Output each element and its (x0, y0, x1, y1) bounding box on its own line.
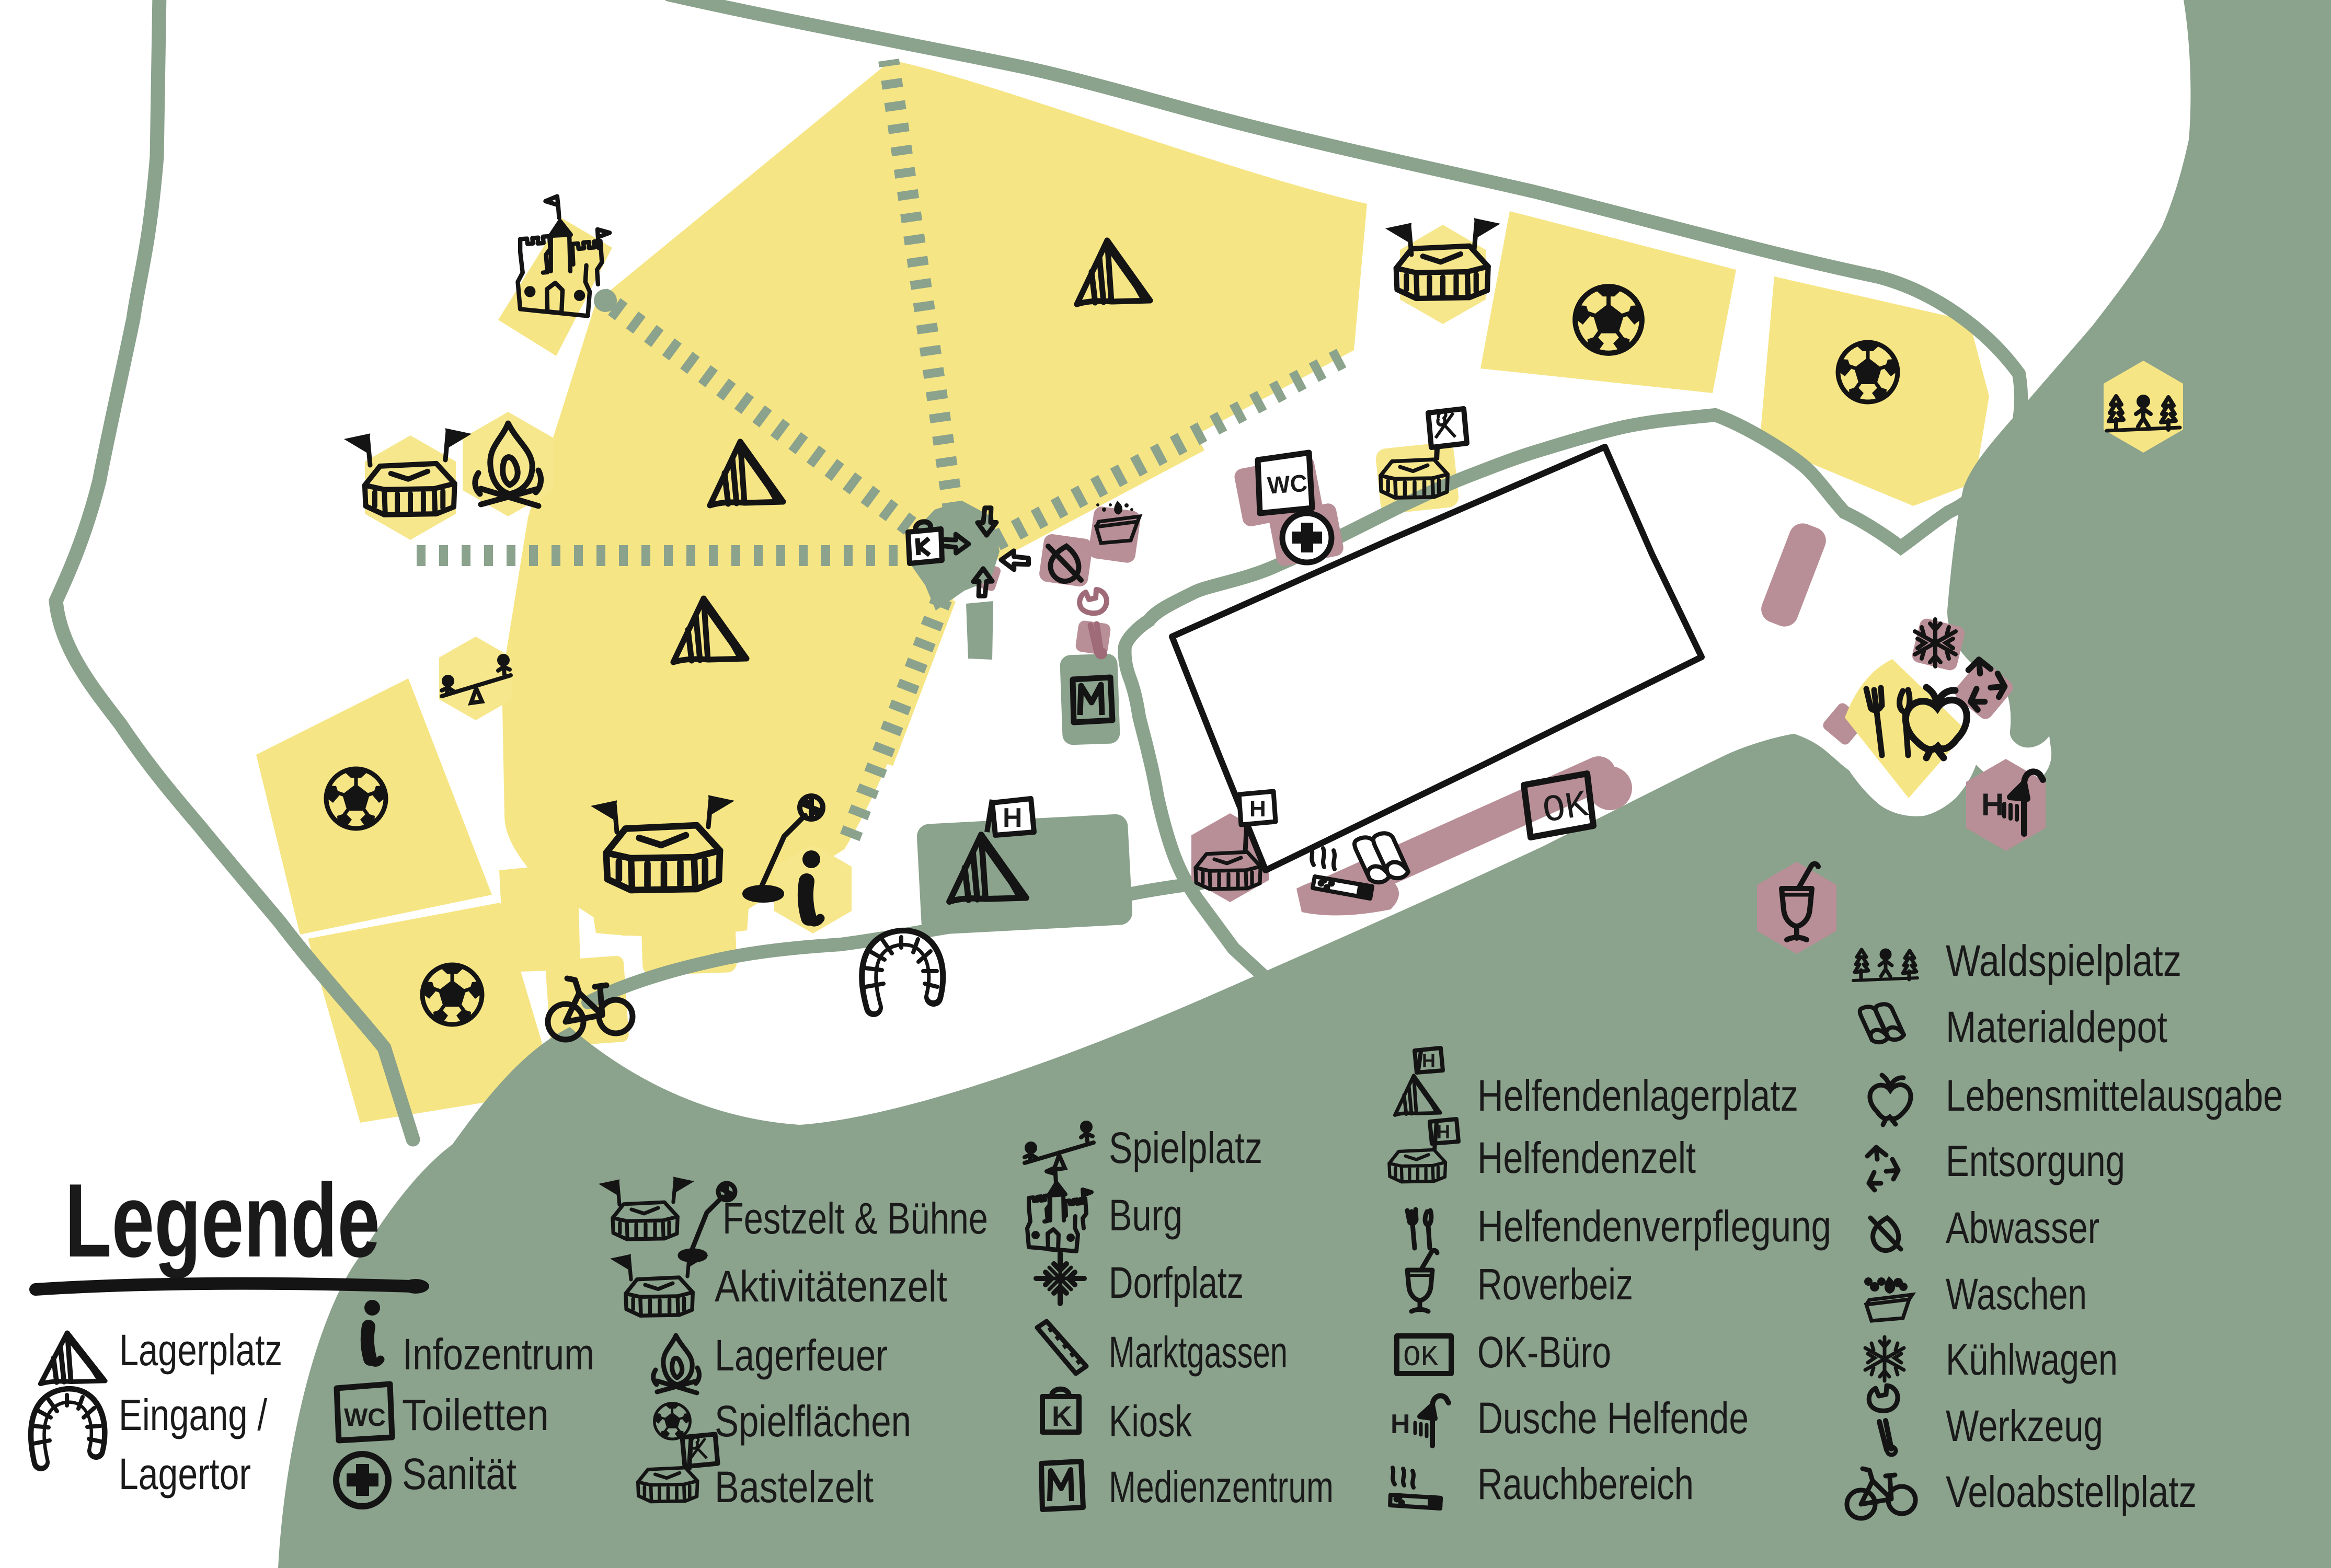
svg-text:Helfendenverpflegung: Helfendenverpflegung (1477, 1202, 1831, 1251)
svg-text:Marktgassen: Marktgassen (1109, 1328, 1288, 1377)
svg-text:Kühlwagen: Kühlwagen (1946, 1335, 2118, 1384)
svg-text:H: H (1981, 787, 2004, 822)
svg-text:Rauchbereich: Rauchbereich (1477, 1459, 1694, 1508)
svg-text:Festzelt & Bühne: Festzelt & Bühne (722, 1194, 988, 1243)
svg-text:Spielplatz: Spielplatz (1109, 1123, 1262, 1172)
svg-text:Sanität: Sanität (402, 1449, 516, 1498)
svg-text:Dorfplatz: Dorfplatz (1109, 1258, 1244, 1307)
svg-text:Waschen: Waschen (1946, 1270, 2087, 1319)
svg-text:Aktivitätenzelt: Aktivitätenzelt (715, 1262, 947, 1311)
svg-text:H: H (1391, 1409, 1410, 1439)
svg-text:H: H (1249, 796, 1266, 822)
svg-text:Helfendenzelt: Helfendenzelt (1477, 1133, 1696, 1182)
svg-text:Helfendenlagerplatz: Helfendenlagerplatz (1477, 1071, 1798, 1120)
svg-text:OK: OK (1540, 783, 1591, 833)
svg-text:H: H (1003, 803, 1023, 833)
svg-text:Infozentrum: Infozentrum (403, 1330, 594, 1379)
svg-text:Abwasser: Abwasser (1946, 1203, 2099, 1252)
svg-text:WC: WC (1267, 469, 1308, 499)
svg-text:Veloabstellplatz: Veloabstellplatz (1946, 1467, 2197, 1516)
svg-text:H: H (1422, 1050, 1436, 1071)
svg-text:Kiosk: Kiosk (1109, 1397, 1192, 1446)
svg-text:Toiletten: Toiletten (402, 1390, 549, 1439)
svg-text:Dusche Helfende: Dusche Helfende (1477, 1393, 1749, 1443)
svg-text:Medienzentrum: Medienzentrum (1109, 1462, 1334, 1512)
svg-text:Werkzeug: Werkzeug (1946, 1401, 2103, 1450)
svg-text:WC: WC (344, 1404, 386, 1432)
svg-text:Legende: Legende (65, 1162, 380, 1279)
svg-text:Burg: Burg (1109, 1191, 1182, 1240)
svg-text:OK: OK (1403, 1341, 1439, 1374)
svg-text:Bastelzelt: Bastelzelt (715, 1462, 874, 1512)
svg-text:Roverbeiz: Roverbeiz (1477, 1260, 1633, 1309)
svg-text:Eingang /: Eingang / (119, 1390, 268, 1439)
svg-text:OK-Büro: OK-Büro (1477, 1328, 1611, 1377)
svg-text:Waldspielplatz: Waldspielplatz (1946, 936, 2181, 985)
svg-text:Spielflächen: Spielflächen (715, 1397, 911, 1446)
svg-text:Lagertor: Lagertor (119, 1449, 251, 1498)
svg-text:Entsorgung: Entsorgung (1946, 1136, 2125, 1185)
svg-text:Lagerplatz: Lagerplatz (119, 1325, 282, 1375)
svg-text:Lagerfeuer: Lagerfeuer (715, 1331, 888, 1380)
svg-text:K: K (1052, 1401, 1072, 1432)
svg-text:Materialdepot: Materialdepot (1946, 1002, 2167, 1052)
svg-text:H: H (1437, 1121, 1450, 1143)
svg-text:Lebensmittelausgabe: Lebensmittelausgabe (1946, 1071, 2283, 1120)
